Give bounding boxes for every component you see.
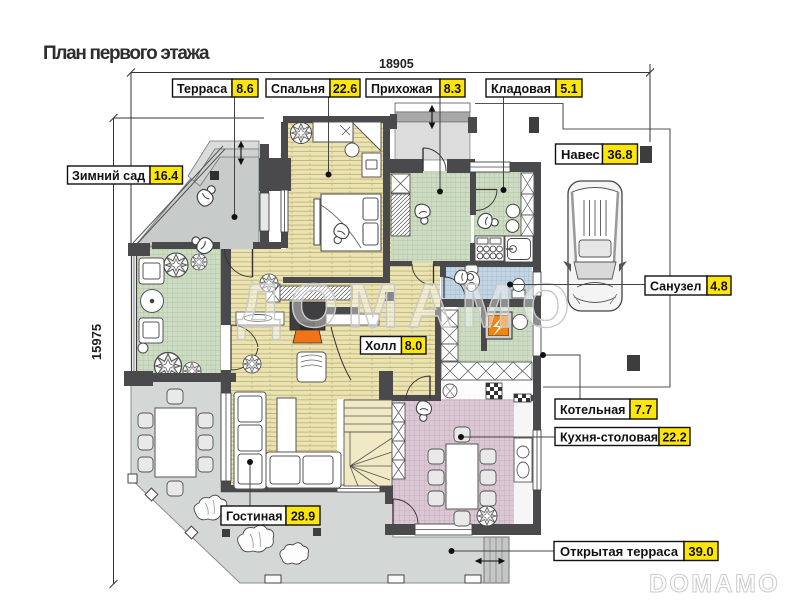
- svg-text:18905: 18905: [379, 57, 414, 71]
- svg-text:22.2: 22.2: [662, 431, 686, 445]
- svg-text:Открытая терраса: Открытая терраса: [560, 544, 679, 559]
- svg-text:Кладовая: Кладовая: [491, 82, 551, 96]
- svg-text:5.1: 5.1: [560, 82, 577, 96]
- svg-text:DOMAMO: DOMAMO: [649, 570, 780, 598]
- svg-text:16.4: 16.4: [154, 169, 178, 183]
- svg-text:8.0: 8.0: [405, 339, 422, 353]
- svg-text:8.6: 8.6: [236, 82, 253, 96]
- svg-text:Кухня-столовая: Кухня-столовая: [560, 431, 658, 445]
- svg-text:28.9: 28.9: [291, 510, 315, 524]
- svg-text:8.3: 8.3: [444, 82, 461, 96]
- svg-text:Спальня: Спальня: [271, 82, 325, 96]
- svg-text:План первого этажа: План первого этажа: [43, 43, 210, 64]
- svg-text:4.8: 4.8: [710, 280, 727, 294]
- svg-text:Терраса: Терраса: [177, 82, 228, 96]
- svg-text:Прихожая: Прихожая: [371, 82, 433, 96]
- svg-text:Гостиная: Гостиная: [226, 510, 283, 524]
- svg-text:ДОМАМО: ДОМАМО: [237, 272, 579, 341]
- svg-text:39.0: 39.0: [688, 544, 713, 559]
- svg-text:Зимний сад: Зимний сад: [72, 169, 145, 183]
- svg-text:15975: 15975: [89, 324, 104, 360]
- svg-text:36.8: 36.8: [607, 147, 632, 162]
- svg-text:7.7: 7.7: [635, 403, 652, 417]
- svg-text:Холл: Холл: [365, 339, 396, 353]
- svg-text:Навес: Навес: [561, 147, 600, 162]
- svg-text:22.6: 22.6: [333, 82, 357, 96]
- svg-text:Котельная: Котельная: [560, 403, 625, 417]
- svg-text:Санузел: Санузел: [650, 280, 701, 294]
